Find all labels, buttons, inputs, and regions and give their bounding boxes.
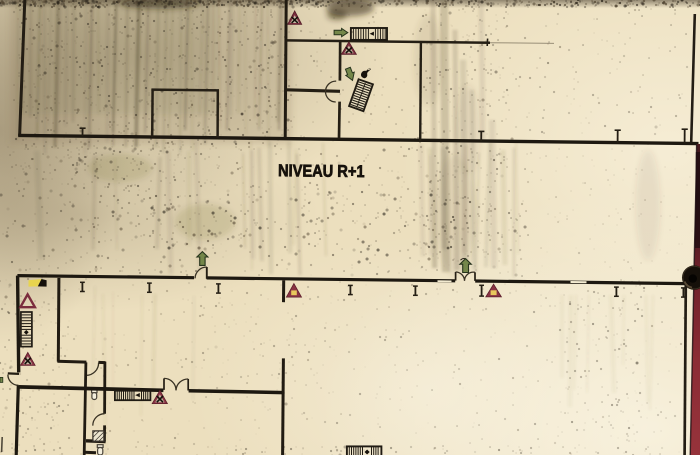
svg-text:NIVEAU R+1: NIVEAU R+1 [278, 161, 365, 181]
